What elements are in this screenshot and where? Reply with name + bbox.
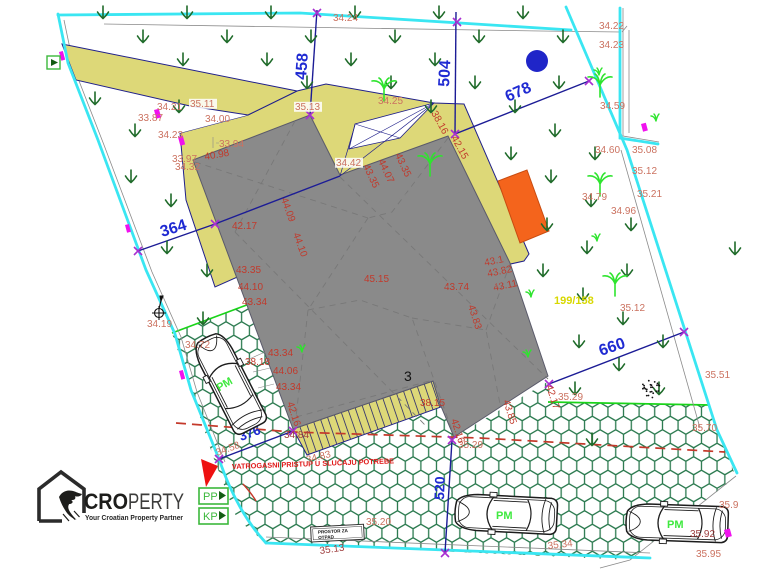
- svg-text:35.95: 35.95: [696, 549, 721, 560]
- svg-text:PM: PM: [496, 510, 513, 522]
- svg-text:34.19: 34.19: [147, 319, 172, 330]
- svg-text:35.92: 35.92: [690, 529, 715, 540]
- svg-text:Your Croatian Property Partner: Your Croatian Property Partner: [85, 515, 183, 522]
- svg-text:34.23: 34.23: [599, 40, 624, 51]
- svg-text:OTPAD: OTPAD: [318, 534, 335, 540]
- svg-text:43.34: 43.34: [242, 297, 267, 308]
- svg-text:35.08: 35.08: [632, 145, 657, 156]
- svg-text:34.25: 34.25: [378, 96, 403, 107]
- svg-text:34.59: 34.59: [600, 101, 625, 112]
- svg-text:44.10: 44.10: [238, 282, 263, 293]
- svg-text:34.79: 34.79: [582, 192, 607, 203]
- svg-text:34.24: 34.24: [333, 13, 358, 24]
- svg-text:38.15: 38.15: [420, 398, 445, 409]
- svg-text:35.13: 35.13: [295, 102, 320, 113]
- svg-text:199/158: 199/158: [554, 295, 594, 307]
- svg-text:34.72: 34.72: [185, 340, 210, 351]
- svg-text:CRO: CRO: [84, 489, 128, 514]
- svg-text:34.00: 34.00: [205, 114, 230, 125]
- svg-text:520: 520: [431, 476, 448, 500]
- svg-text:34.96: 34.96: [611, 206, 636, 217]
- svg-text:35.12: 35.12: [632, 166, 657, 177]
- svg-text:34.21: 34.21: [157, 102, 182, 113]
- svg-text:34.84: 34.84: [284, 430, 309, 441]
- svg-text:PERTY: PERTY: [128, 489, 184, 514]
- svg-text:35.12: 35.12: [620, 303, 645, 314]
- svg-text:43.74: 43.74: [444, 282, 469, 293]
- svg-text:44.06: 44.06: [273, 366, 298, 377]
- svg-text:43.35: 43.35: [236, 265, 261, 276]
- svg-text:43.34: 43.34: [268, 348, 293, 359]
- svg-text:504: 504: [436, 60, 454, 88]
- svg-text:35.70: 35.70: [692, 423, 717, 434]
- svg-text:458: 458: [293, 52, 312, 80]
- svg-text:34.60: 34.60: [595, 145, 620, 156]
- svg-text:35.21: 35.21: [637, 189, 662, 200]
- svg-text:35.20: 35.20: [366, 517, 391, 528]
- svg-text:33.87: 33.87: [138, 113, 163, 124]
- svg-text:PP: PP: [203, 491, 218, 503]
- svg-text:35.51: 35.51: [705, 370, 730, 381]
- svg-text:42.17: 42.17: [232, 221, 257, 232]
- svg-text:38.18: 38.18: [245, 357, 270, 368]
- svg-text:34.32: 34.32: [175, 162, 200, 173]
- svg-text:35.9: 35.9: [719, 500, 739, 511]
- svg-text:35.29: 35.29: [558, 392, 583, 403]
- svg-text:34.22: 34.22: [599, 21, 624, 32]
- svg-text:3: 3: [404, 368, 412, 384]
- svg-text:45.15: 45.15: [364, 274, 389, 285]
- svg-text:KP: KP: [203, 511, 218, 523]
- svg-text:43.34: 43.34: [276, 382, 301, 393]
- svg-text:34.42: 34.42: [336, 158, 361, 169]
- svg-text:34.23: 34.23: [158, 130, 183, 141]
- svg-text:PM: PM: [667, 519, 684, 531]
- svg-text:35.11: 35.11: [190, 99, 215, 110]
